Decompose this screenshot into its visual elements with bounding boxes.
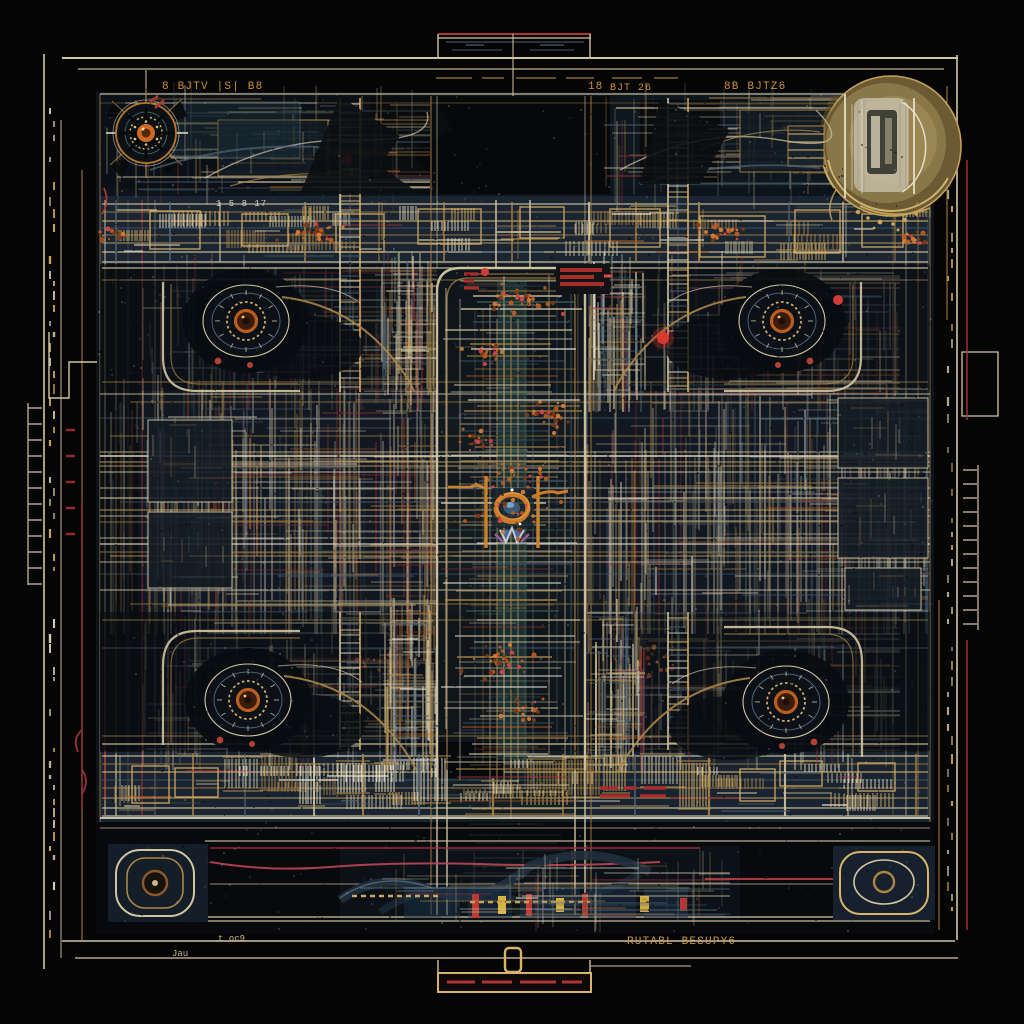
svg-text:RUTABL BESUPY6: RUTABL BESUPY6 bbox=[627, 936, 736, 948]
svg-text:8 BJTV |S| B8: 8 BJTV |S| B8 bbox=[162, 81, 263, 93]
svg-text:Jau: Jau bbox=[172, 949, 188, 959]
svg-text:18: 18 bbox=[588, 81, 603, 93]
svg-text:8B BJTZ6: 8B BJTZ6 bbox=[724, 81, 786, 93]
svg-text:1 5 8 17: 1 5 8 17 bbox=[216, 199, 267, 209]
svg-text:t oc9: t oc9 bbox=[218, 934, 245, 944]
